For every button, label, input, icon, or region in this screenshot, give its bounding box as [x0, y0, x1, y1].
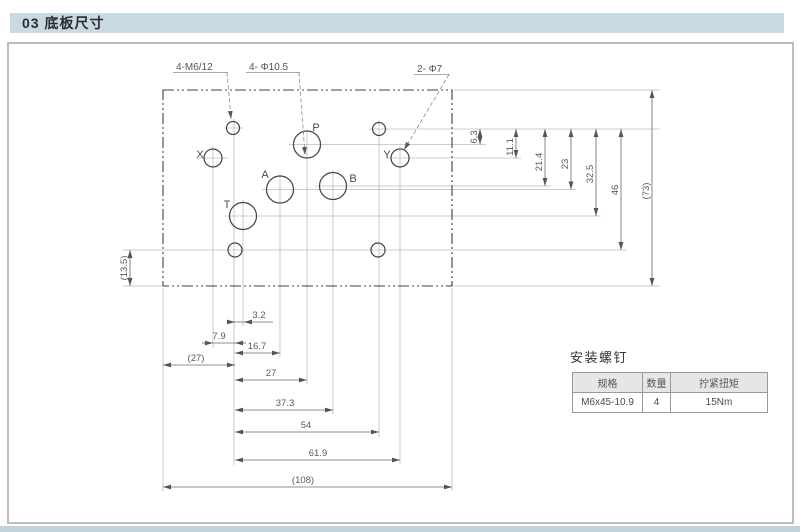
callout-leaders: [173, 73, 450, 156]
dim-bottom-9: (108): [292, 475, 314, 486]
plate-outline: [163, 90, 452, 286]
callout-pilot-ports: 2- Φ7: [417, 64, 443, 75]
screw-table-cell-spec: M6x45-10.9: [573, 393, 643, 413]
port-label-p: P: [312, 122, 319, 134]
dim-bottom-3: 16.7: [248, 341, 267, 352]
dim-left-1: (13.5): [119, 256, 130, 281]
port-label-b: B: [349, 173, 356, 185]
screw-table-data-row: M6x45-10.9 4 15Nm: [573, 393, 768, 413]
dim-right-1: 6.3: [469, 130, 480, 143]
screw-table-header-torque: 拧紧扭矩: [671, 373, 768, 393]
screw-table-header-spec: 规格: [573, 373, 643, 393]
dim-bottom-2: 7.9: [212, 331, 225, 342]
dim-right-3: 21.4: [534, 153, 545, 172]
next-section-bar: [0, 526, 800, 532]
screw-table-header-row: 规格 数量 拧紧扭矩: [573, 373, 768, 393]
screw-table-header-qty: 数量: [643, 373, 671, 393]
port-label-x: X: [196, 149, 204, 161]
dim-right-6: 46: [610, 185, 621, 196]
dim-bottom-6: 37.3: [276, 398, 295, 409]
callout-mounting-holes: 4-M6/12: [176, 62, 213, 73]
callout-main-ports: 4- Φ10.5: [249, 62, 289, 73]
technical-drawing: 4-M6/12 4- Φ10.5 2- Φ7 P X Y A B T 6.3 1…: [0, 0, 800, 532]
screw-table-cell-torque: 15Nm: [671, 393, 768, 413]
dim-right-4: 23: [560, 159, 571, 170]
dim-bottom-7: 54: [301, 420, 312, 431]
dim-bottom-8: 61.9: [309, 448, 328, 459]
screw-table-cell-qty: 4: [643, 393, 671, 413]
dim-bottom-1: 3.2: [252, 310, 265, 321]
dim-bottom-4: (27): [188, 353, 205, 364]
dimension-lines: [130, 90, 652, 487]
screw-table: 规格 数量 拧紧扭矩 M6x45-10.9 4 15Nm: [572, 372, 768, 413]
dim-right-7: (73): [641, 183, 652, 200]
screw-table-title: 安装螺钉: [570, 347, 628, 366]
dim-right-2: 11.1: [505, 138, 516, 156]
port-label-a: A: [261, 169, 269, 181]
page-root: 03 底板尺寸: [0, 0, 800, 532]
port-label-t: T: [224, 199, 231, 211]
dim-right-5: 32.5: [585, 165, 596, 184]
port-label-y: Y: [383, 149, 391, 161]
dim-bottom-5: 27: [266, 368, 277, 379]
